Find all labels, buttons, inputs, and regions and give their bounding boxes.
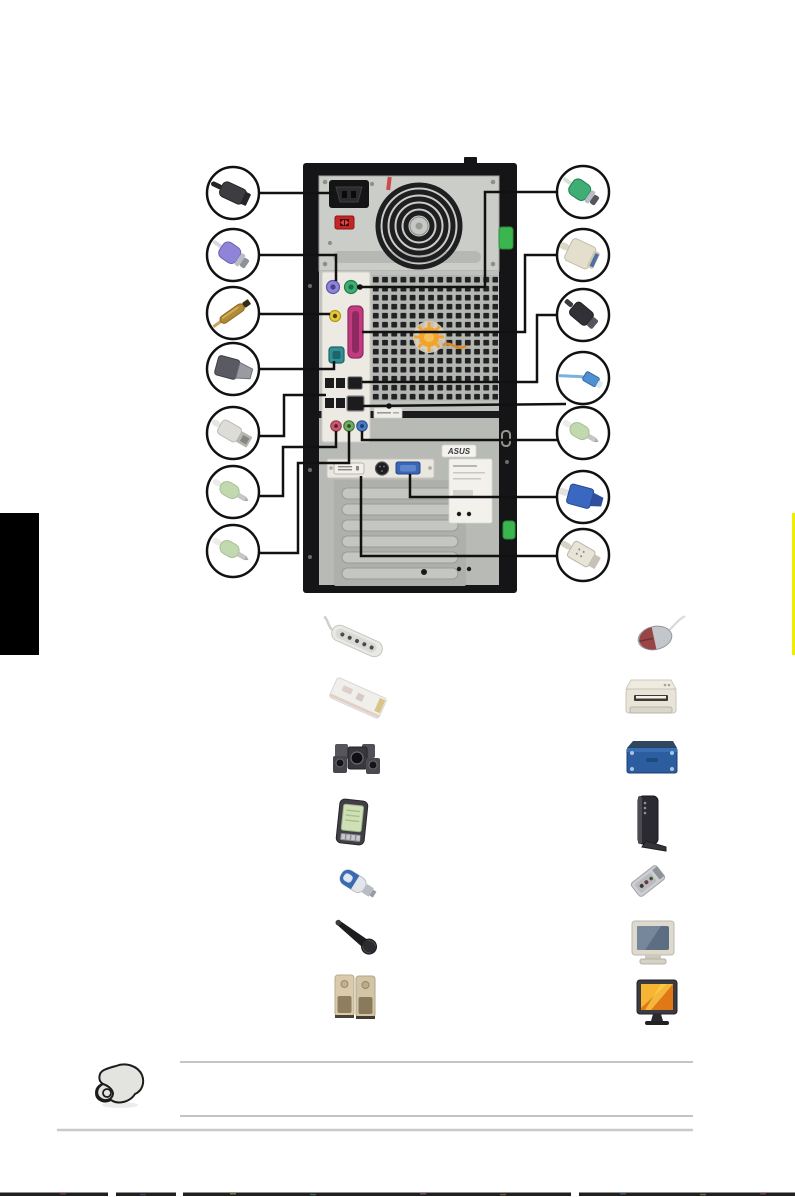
celeron-sticker — [413, 321, 445, 353]
dvi-port — [334, 463, 364, 474]
pda-image — [336, 799, 368, 846]
parallel-port — [348, 306, 363, 358]
usb-flash-drive-image — [337, 867, 379, 901]
peripherals-right-column — [626, 616, 691, 1025]
external-modem-image — [638, 796, 666, 851]
green-clip-lower — [503, 521, 515, 539]
s-video-port — [376, 462, 389, 475]
peripherals-left-column — [317, 617, 387, 1019]
modem-card-image — [329, 677, 387, 719]
line-dot-lan — [386, 403, 392, 409]
rear-panel-connection-diagram: ASUS — [0, 0, 795, 1197]
psu-fan-grille — [378, 185, 460, 267]
callout-serial-connector — [207, 343, 259, 395]
mouse-image — [635, 616, 690, 653]
chapter-tab-left — [0, 513, 39, 655]
callout-ps2-keyboard — [207, 229, 259, 281]
psu-panel — [319, 176, 499, 271]
callout-ps2-mouse — [557, 166, 609, 218]
external-drive-image — [627, 741, 677, 773]
note-section — [96, 1062, 693, 1116]
page-edge-strip — [0, 1193, 795, 1197]
power-inlet-port — [329, 180, 369, 208]
microphone-image — [331, 915, 379, 957]
pointing-hand-icon — [96, 1064, 143, 1108]
callout-spdif-cable — [207, 287, 259, 339]
lcd-monitor-image — [637, 980, 677, 1025]
ieee1394-port — [348, 377, 362, 389]
stereo-speakers-image — [335, 975, 375, 1019]
printer-image — [626, 680, 676, 713]
power-strip-image — [317, 617, 385, 660]
voltage-switch — [335, 216, 354, 229]
line-dot-ps2 — [357, 284, 363, 290]
callout-audio-plug-mic — [207, 466, 259, 518]
io-backplate — [322, 272, 370, 442]
callout-usb-connector — [207, 407, 259, 459]
callout-audio-plug-linein — [557, 407, 609, 459]
serial-port — [329, 347, 344, 363]
asus-sticker-text: ASUS — [447, 447, 471, 456]
callout-lan-cable — [557, 352, 609, 404]
manual-page: ASUS — [0, 0, 795, 1197]
asus-sticker: ASUS — [442, 445, 476, 457]
speaker-system-image — [333, 744, 380, 774]
callout-vga-connector — [556, 471, 609, 523]
green-clip-upper — [499, 227, 513, 249]
callout-audio-plug-lineout — [207, 525, 259, 577]
lan-port — [347, 396, 364, 411]
callout-power-cord — [207, 167, 259, 219]
model-sticker — [374, 408, 402, 418]
callout-dvi-connector — [557, 529, 609, 581]
callout-ieee1394-connector — [557, 289, 609, 341]
callout-parallel-connector — [555, 229, 609, 281]
portable-audio-device-image — [630, 864, 666, 897]
tower-top-tab — [464, 157, 477, 165]
crt-monitor-image — [632, 921, 674, 964]
